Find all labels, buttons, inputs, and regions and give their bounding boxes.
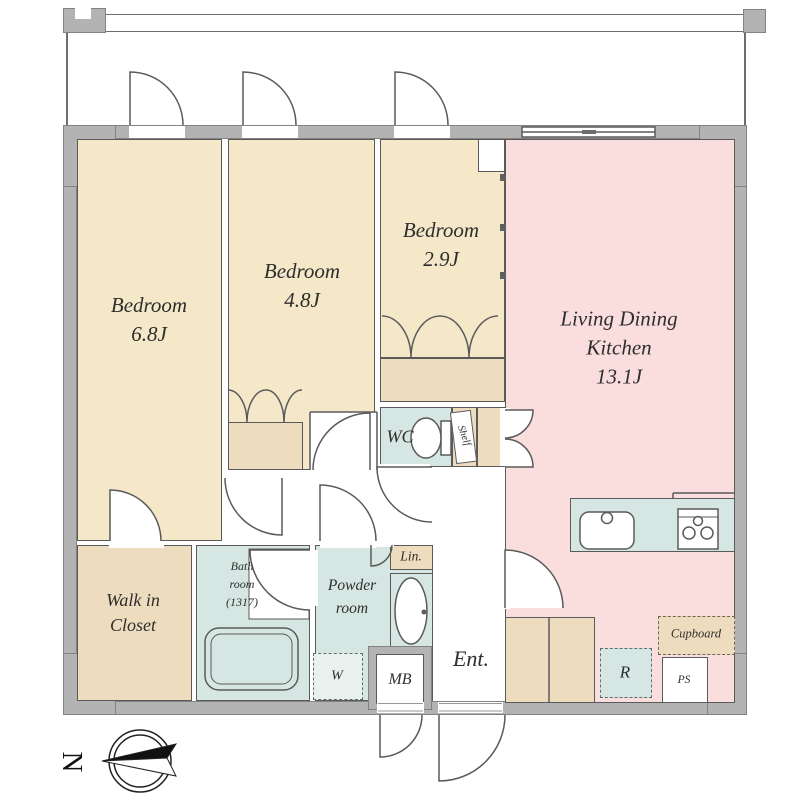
balcony-railing — [104, 14, 746, 32]
wall-right — [733, 125, 747, 715]
door-wc — [377, 467, 432, 522]
label-washer: W — [331, 666, 343, 685]
label-meter-box: MB — [388, 669, 411, 691]
wall-left — [63, 125, 77, 715]
north-arrow-icon — [102, 730, 176, 792]
label-bedroom-4_8: Bedroom4.8J — [264, 257, 340, 315]
door-bedroom-4_8 — [225, 478, 282, 535]
label-wc: WC — [387, 425, 414, 450]
hall-storage — [477, 407, 505, 467]
balcony-pier-notch — [75, 5, 91, 19]
label-entrance: Ent. — [453, 644, 489, 674]
label-cupboard: Cupboard — [671, 625, 721, 642]
balcony-doors — [130, 72, 448, 125]
washbasin-counter — [390, 573, 433, 650]
balcony-side-left — [66, 32, 68, 125]
label-pipe-space: PS — [678, 673, 691, 689]
balcony-pier-right — [743, 9, 766, 33]
label-bath: Bathroom(1317) — [226, 557, 258, 611]
label-refrigerator: R — [620, 660, 630, 683]
label-walk-in-closet: Walk inCloset — [106, 588, 160, 638]
balcony-side-right — [744, 32, 746, 125]
closet-bedroom-4_8 — [228, 422, 303, 470]
pillar-box — [478, 139, 505, 172]
label-powder: Powderroom — [328, 574, 376, 621]
label-ldk: Living DiningKitchen13.1J — [560, 305, 677, 392]
closet-bedroom-2_9 — [380, 358, 505, 402]
wall-top — [63, 125, 747, 139]
entrance-closet — [505, 617, 595, 703]
door-entrance — [439, 715, 505, 781]
door-meter-box — [380, 715, 422, 757]
label-north: N — [52, 752, 92, 773]
door-powder — [320, 485, 376, 541]
floor-plan: Bedroom6.8J Bedroom4.8J Bedroom2.9J Livi… — [0, 0, 800, 800]
label-bedroom-2_9: Bedroom2.9J — [403, 216, 479, 274]
label-bedroom-6_8: Bedroom6.8J — [111, 291, 187, 349]
label-linen: Lin. — [400, 548, 421, 567]
kitchen-counter — [570, 498, 735, 552]
hall-nook — [310, 412, 375, 470]
